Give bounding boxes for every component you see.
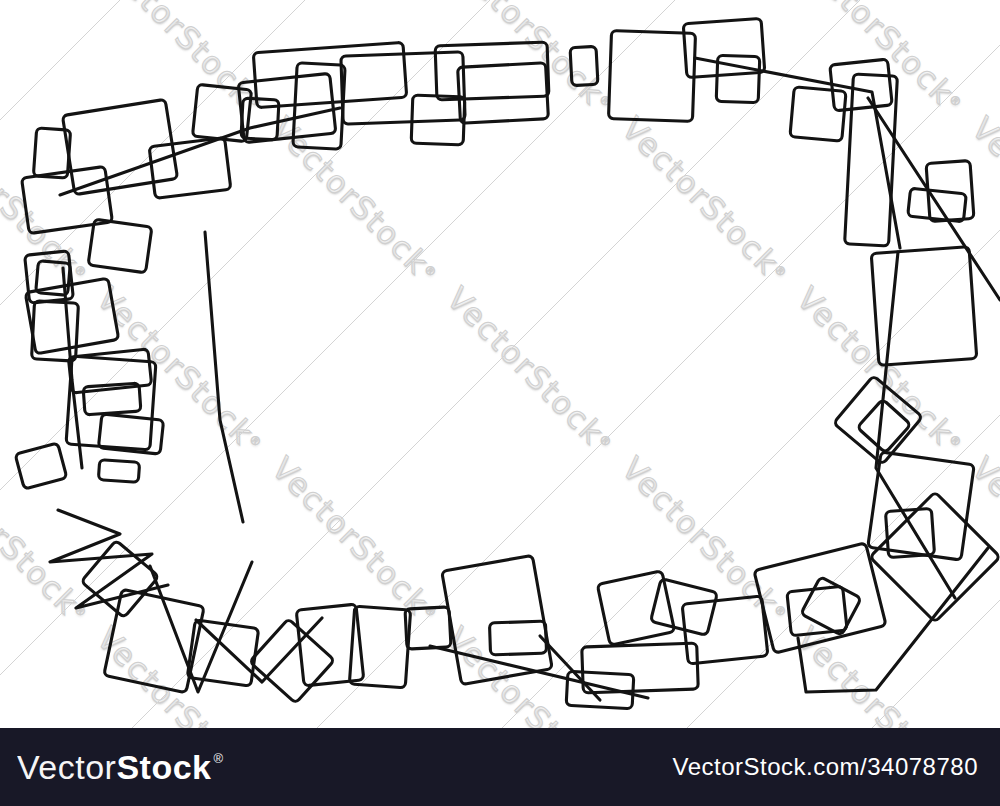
vectorstock-logo: VectorStock® <box>17 750 224 784</box>
doodle-square <box>857 399 911 453</box>
doodle-square <box>489 621 546 655</box>
doodle-connector-line <box>60 108 340 195</box>
doodle-square <box>405 607 451 649</box>
doodle-square <box>682 596 768 664</box>
doodle-square <box>597 571 674 645</box>
brand-stock: Stock <box>116 748 211 786</box>
doodle-square <box>238 73 336 142</box>
stock-image-preview: VectorStock®VectorStock®VectorStock®Vect… <box>0 0 1000 806</box>
watermark-diagonal-line <box>0 0 490 490</box>
doodle-square <box>15 443 67 489</box>
doodle-square <box>801 577 861 636</box>
doodle-square <box>754 543 886 653</box>
doodle-square <box>787 586 847 636</box>
brand-vector: Vector <box>17 748 116 786</box>
doodle-square <box>608 31 695 122</box>
artwork-area: VectorStock®VectorStock®VectorStock®Vect… <box>0 0 1000 728</box>
doodle-connector-line <box>205 232 243 522</box>
footer-bar: VectorStock® VectorStock.com/34078780 <box>0 728 1000 806</box>
watermark-diagonal-line <box>0 0 305 305</box>
doodle-square <box>458 63 549 124</box>
watermark-diagonal-line <box>0 0 860 728</box>
doodle-connector-line <box>798 548 988 692</box>
doodle-square <box>790 87 846 141</box>
doodle-square <box>149 138 231 199</box>
squares-doodle-frame <box>0 0 1000 728</box>
doodle-connector-line <box>868 98 1000 300</box>
doodle-square <box>570 46 598 85</box>
doodle-square <box>98 460 139 483</box>
doodle-square <box>104 589 204 693</box>
image-url-text: VectorStock.com/34078780 <box>672 753 978 781</box>
watermark-diagonal-line <box>0 0 120 120</box>
registered-mark-icon: ® <box>213 751 223 766</box>
doodle-square <box>88 219 152 273</box>
doodle-square <box>250 619 335 704</box>
